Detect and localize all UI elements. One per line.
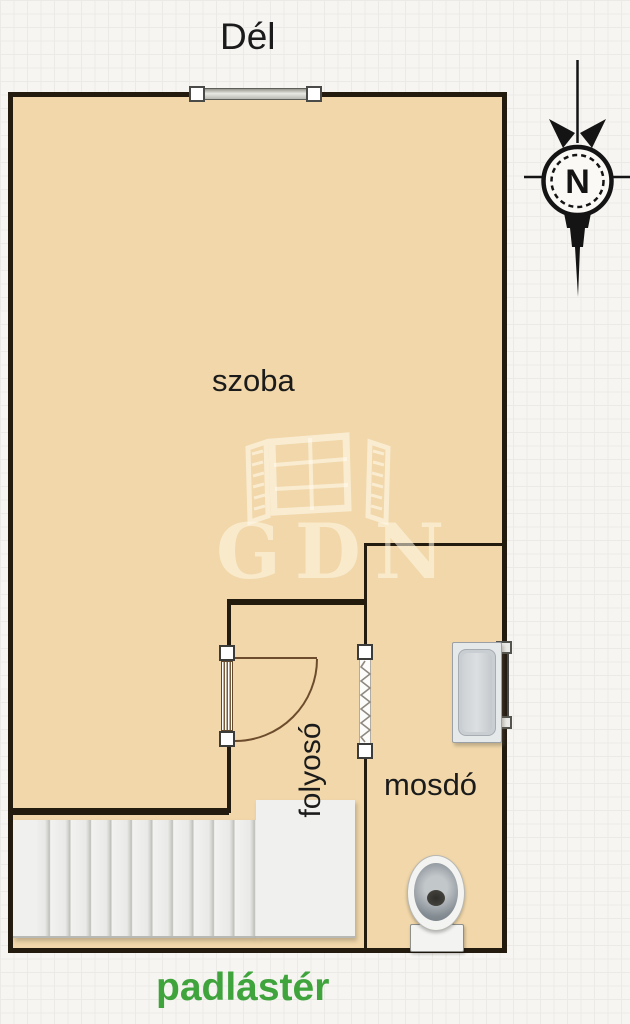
floor-plan-canvas: GDN N Dél szoba folyosó mosdó padlástér [0, 0, 630, 1024]
watermark-text: GDN [216, 514, 458, 590]
compass-letter: N [565, 163, 590, 201]
washroom-label: mosdó [384, 767, 477, 803]
attic-label: padlástér [156, 966, 329, 1010]
compass-right-wing [580, 119, 606, 148]
room-label: szoba [212, 363, 295, 399]
compass-left-wing [549, 119, 575, 148]
corridor-label: folyosó [295, 700, 327, 840]
compass-north-icon: N [515, 52, 630, 302]
folding-door-squiggle [361, 661, 370, 742]
compass-south-spike [564, 213, 591, 297]
orientation-label: Dél [220, 16, 276, 58]
